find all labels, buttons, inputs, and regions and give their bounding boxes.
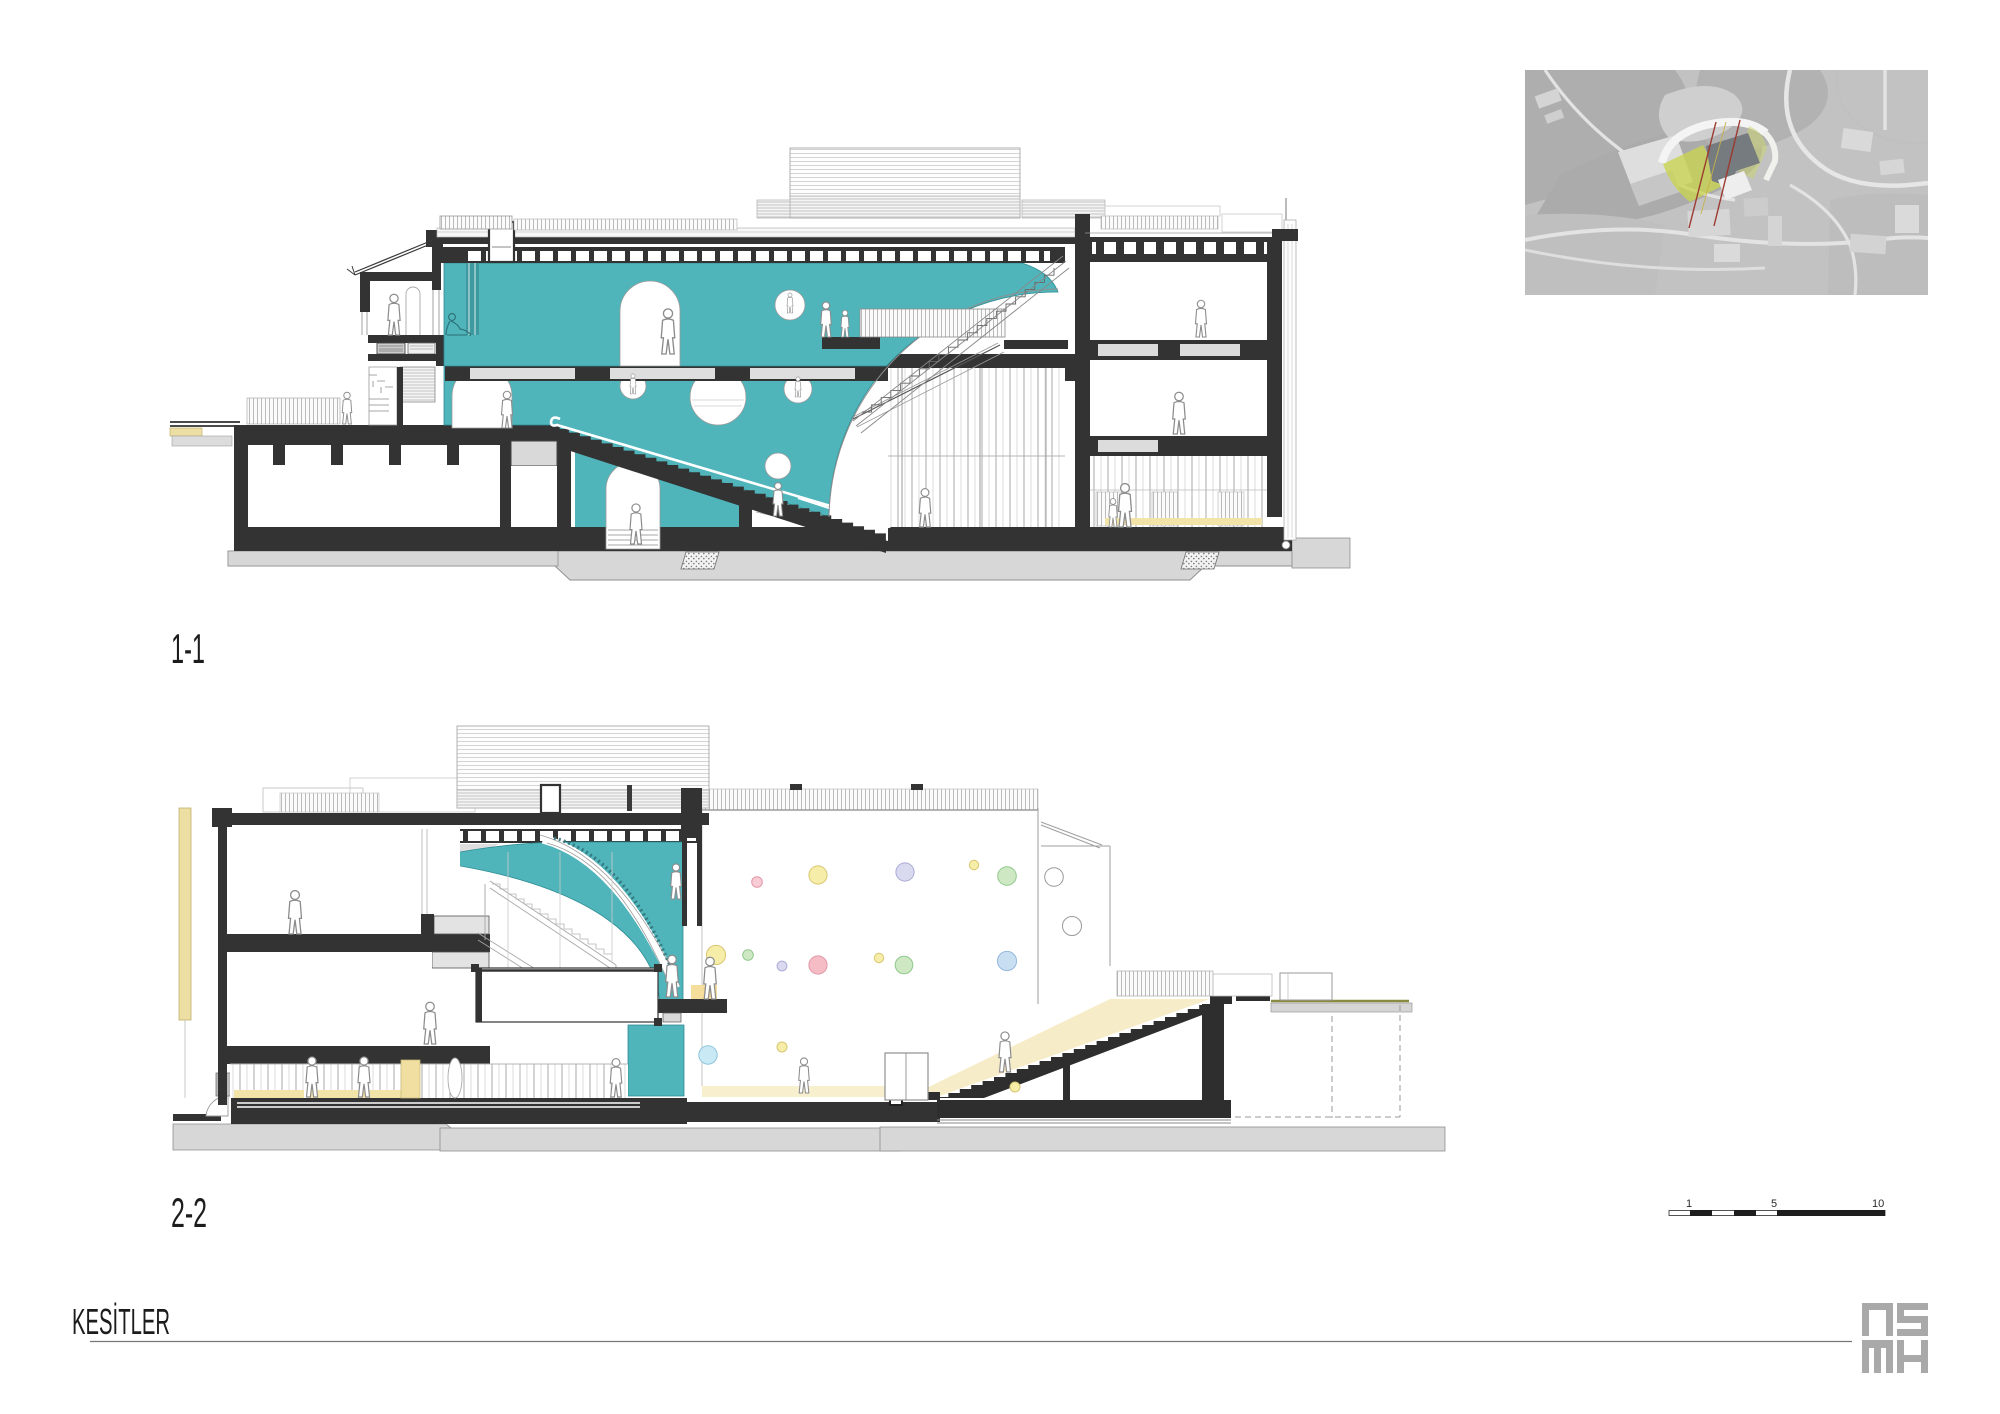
svg-text:2-2: 2-2: [171, 1189, 207, 1236]
svg-text:5: 5: [1771, 1198, 1777, 1210]
svg-text:1: 1: [1686, 1198, 1692, 1210]
svg-text:KESİTLER: KESİTLER: [72, 1301, 170, 1342]
svg-text:1-1: 1-1: [171, 625, 205, 672]
svg-text:10: 10: [1872, 1198, 1884, 1210]
